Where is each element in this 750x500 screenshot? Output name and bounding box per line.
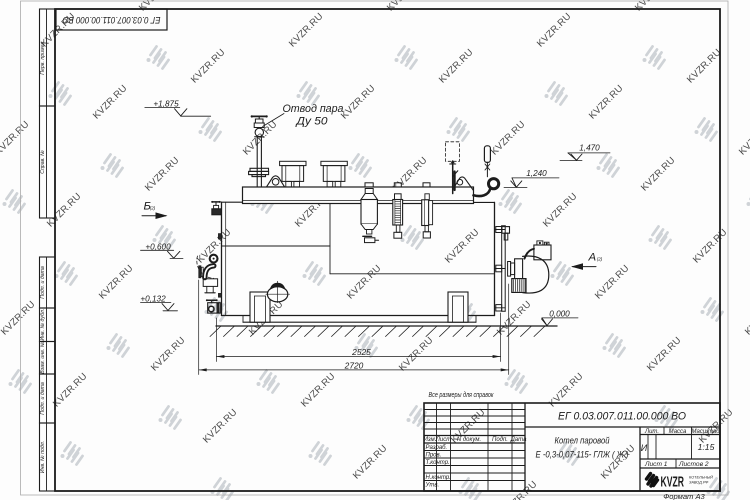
svg-text:Утв.: Утв.	[425, 483, 440, 489]
svg-text:Т.контр.: Т.контр.	[426, 460, 450, 466]
svg-text:Лит.: Лит.	[644, 429, 659, 435]
svg-text:Взам. инв. №: Взам. инв. №	[40, 341, 46, 373]
svg-text:ЕГ 0.03.007.011.00.000 ВО: ЕГ 0.03.007.011.00.000 ВО	[558, 411, 686, 423]
svg-text:+0,132: +0,132	[140, 295, 166, 304]
svg-text:Е -0,3-0,07-115- ГЛЖ ( Ж ): Е -0,3-0,07-115- ГЛЖ ( Ж )	[536, 450, 629, 460]
svg-text:Лист: Лист	[435, 437, 451, 443]
svg-text:КОТЕЛЬНЫЙ: КОТЕЛЬНЫЙ	[689, 476, 713, 480]
svg-text:N докум.: N докум.	[457, 437, 481, 443]
svg-text:Все размеры для справок: Все размеры для справок	[429, 390, 494, 399]
svg-text:Разраб.: Разраб.	[426, 445, 448, 451]
svg-text:Лист 1: Лист 1	[644, 461, 668, 468]
svg-text:2720: 2720	[344, 361, 364, 371]
svg-text:ЕГ 0.03.007.011.00.000 ВО: ЕГ 0.03.007.011.00.000 ВО	[62, 14, 161, 25]
svg-text:Котел паровой: Котел паровой	[555, 436, 610, 446]
svg-text:ЗАВОД.РФ: ЗАВОД.РФ	[689, 481, 708, 485]
svg-text:0,000: 0,000	[549, 309, 570, 318]
svg-text:(2): (2)	[597, 257, 603, 262]
svg-text:Подп. и дата: Подп. и дата	[40, 382, 46, 415]
svg-text:Пров.: Пров.	[426, 453, 442, 459]
svg-text:KVZR: KVZR	[661, 474, 685, 491]
svg-text:И: И	[641, 443, 648, 453]
svg-text:Масштаб: Масштаб	[691, 429, 720, 435]
svg-text:(2): (2)	[150, 206, 156, 211]
svg-text:Инв. № подл.: Инв. № подл.	[40, 441, 46, 473]
svg-text:Инв. № дубл.: Инв. № дубл.	[40, 309, 46, 341]
svg-text:2525: 2525	[351, 347, 371, 357]
svg-text:Подп.: Подп.	[492, 437, 508, 443]
svg-text:Формат А3: Формат А3	[663, 492, 705, 500]
svg-text:Масса: Масса	[669, 429, 687, 435]
svg-text:Изм.: Изм.	[424, 437, 437, 443]
svg-text:Листов 2: Листов 2	[678, 461, 709, 468]
svg-text:1,470: 1,470	[579, 144, 600, 153]
svg-text:1:15: 1:15	[698, 442, 715, 452]
svg-text:А: А	[588, 252, 597, 264]
svg-text:Перв. примен.: Перв. примен.	[40, 40, 46, 74]
svg-text:Н.контр.: Н.контр.	[426, 475, 451, 481]
svg-text:Справ. №: Справ. №	[40, 150, 46, 174]
svg-text:Ду 50: Ду 50	[294, 116, 328, 128]
svg-text:Подп. и дата: Подп. и дата	[40, 266, 46, 299]
svg-text:Дата: Дата	[510, 437, 527, 443]
svg-text:1,240: 1,240	[526, 169, 547, 178]
svg-text:Отвод пара: Отвод пара	[283, 103, 344, 115]
